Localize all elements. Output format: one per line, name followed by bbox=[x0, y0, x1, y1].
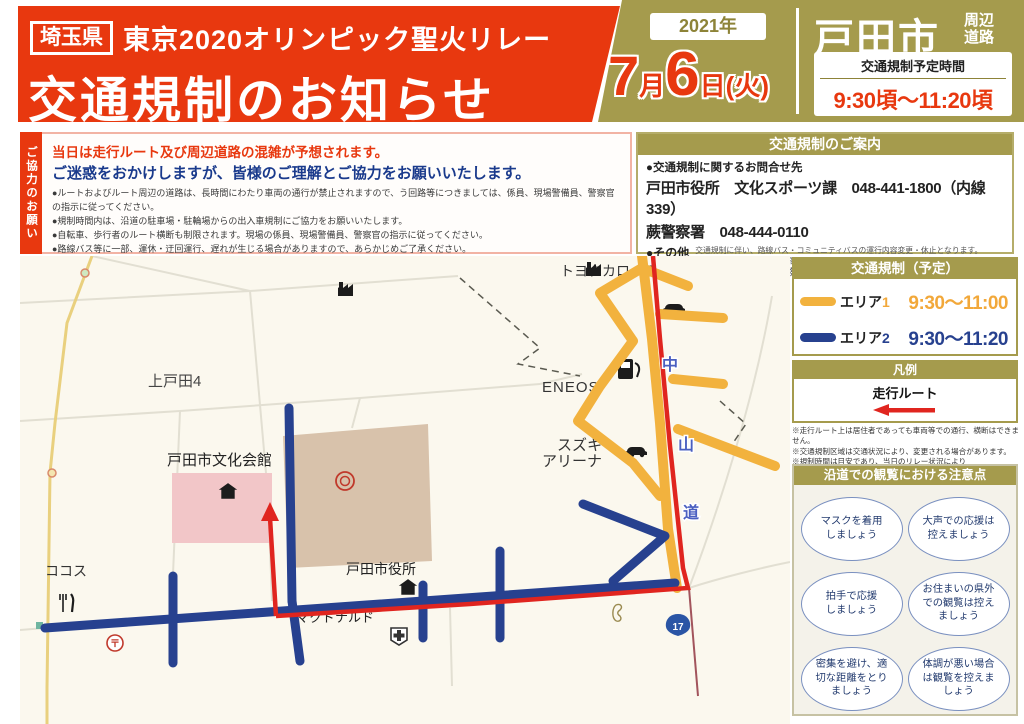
area2-label: エリア bbox=[840, 330, 882, 346]
tip-bubble: マスクを着用しましょう bbox=[801, 497, 903, 561]
guide-title: 交通規制のご案内 bbox=[638, 134, 1012, 155]
legend-title: 凡例 bbox=[794, 362, 1016, 379]
date-day-num: 6 bbox=[665, 40, 699, 109]
area2-time: 9:30～11:20 bbox=[908, 324, 1008, 351]
regulation-panel-title: 交通規制（予定） bbox=[794, 259, 1016, 279]
label-nakasendo-1: 中 bbox=[662, 355, 678, 374]
viewing-tips-panel: 沿道での観覧における注意点 マスクを着用しましょう 大声での応援は控えましょう … bbox=[792, 464, 1018, 716]
year-box: 2021年 bbox=[650, 13, 766, 40]
header-banner-gold: 2021年 7月6日(火) 戸田市 周辺 道路 交通規制予定時間 9:30頃～1… bbox=[592, 0, 1024, 122]
guide-contact-line: 戸田市役所 文化スポーツ課 048-441-1800（内線339） bbox=[646, 177, 1004, 219]
label-nakasendo-3: 道 bbox=[683, 503, 699, 522]
request-bullet: ●路線バス等に一部、運休・迂回運行、遅れが生じる場合がありますので、あらかじめご… bbox=[52, 243, 622, 257]
date-day-label: 日(火) bbox=[700, 71, 769, 101]
area1-color-bar bbox=[800, 297, 836, 306]
divider bbox=[796, 8, 799, 114]
tip-bubble: 体調が悪い場合は観覧を控えましょう bbox=[908, 647, 1010, 711]
regulation-time-value: 9:30頃～11:20頃 bbox=[820, 83, 1006, 115]
cooperation-request-box: ご協力のお願い 当日は走行ルート及び周辺道路の混雑が予想されます。 ご迷惑をおか… bbox=[20, 132, 632, 254]
area2-number: 2 bbox=[882, 330, 890, 346]
regulation-guide-box: 交通規制のご案内 ●交通規制に関するお問合せ先 戸田市役所 文化スポーツ課 04… bbox=[636, 132, 1014, 254]
label-kamitoda: 上戸田4 bbox=[148, 373, 201, 390]
running-route-label: 走行ルート bbox=[794, 383, 1016, 402]
label-suzuki-arena2: アリーナ bbox=[542, 453, 602, 470]
request-bullet: ●自転車、歩行者のルート横断も制限されます。現場の係員、現場警備員、警察官の指示… bbox=[52, 229, 622, 243]
area1-label: エリア bbox=[840, 294, 882, 310]
request-bullet: ●規制時間内は、沿道の駐車場・駐輪場からの出入車規制にご協力をお願いいたします。 bbox=[52, 215, 622, 229]
running-route-arrow bbox=[873, 403, 937, 417]
regulation-schedule-panel: 交通規制（予定） エリア1 9:30～11:00 エリア2 9:30～11:20 bbox=[792, 257, 1018, 356]
regulation-time-box: 交通規制予定時間 9:30頃～11:20頃 bbox=[814, 52, 1012, 116]
request-bullet: ●ルートおよびルート周辺の道路は、長時間にわたり車両の通行が禁止されますので、う… bbox=[52, 187, 622, 215]
event-date: 7月6日(火) bbox=[608, 40, 769, 111]
header-banner-red: 埼玉県 東京2020オリンピック聖火リレー 交通規制のお知らせ bbox=[18, 6, 620, 122]
label-bunka-kaikan: 戸田市文化会館 bbox=[167, 452, 272, 469]
route17-number: 17 bbox=[672, 622, 684, 633]
area1-row: エリア1 9:30～11:00 bbox=[794, 279, 1016, 315]
viewing-tips-title: 沿道での観覧における注意点 bbox=[794, 466, 1016, 485]
legend-panel: 凡例 走行ルート bbox=[792, 360, 1018, 423]
regulation-time-title: 交通規制予定時間 bbox=[820, 56, 1006, 79]
tip-bubble: 大声での応援は控えましょう bbox=[908, 497, 1010, 561]
area1-number: 1 bbox=[882, 294, 890, 310]
prefecture-badge: 埼玉県 bbox=[30, 21, 113, 55]
label-nakasendo-2: 山 bbox=[678, 436, 694, 454]
date-month-num: 7 bbox=[608, 44, 639, 107]
surrounding-roads-label: 周辺 道路 bbox=[964, 12, 994, 47]
guide-contact-heading: ●交通規制に関するお問合せ先 bbox=[646, 159, 1004, 175]
label-cocos: ココス bbox=[45, 563, 87, 579]
tip-bubble: お住まいの県外での観覧は控えましょう bbox=[908, 572, 1010, 636]
area2-color-bar bbox=[800, 333, 836, 342]
tip-bubble: 拍手で応援しましょう bbox=[801, 572, 903, 636]
cooperation-request-tab: ご協力のお願い bbox=[20, 132, 42, 254]
flyer-page: 埼玉県 東京2020オリンピック聖火リレー 交通規制のお知らせ 2021年 7月… bbox=[0, 0, 1024, 724]
route-map: 上戸田4 戸田市文化会館 ENEOS トヨタカローラ スズキ アリーナ ココス … bbox=[20, 256, 790, 724]
request-headline-blue: ご迷惑をおかけしますが、皆様のご理解とご協力をお願いいたします。 bbox=[52, 162, 622, 183]
date-month-label: 月 bbox=[639, 71, 665, 101]
page-title: 交通規制のお知らせ bbox=[18, 57, 620, 132]
tip-bubble: 密集を避け、適切な距離をとりましょう bbox=[801, 647, 903, 711]
area1-time: 9:30～11:00 bbox=[908, 288, 1008, 315]
route-map-svg: 上戸田4 戸田市文化会館 ENEOS トヨタカローラ スズキ アリーナ ココス … bbox=[20, 256, 790, 724]
relay-title: 東京2020オリンピック聖火リレー bbox=[123, 18, 551, 57]
request-headline-red: 当日は走行ルート及び周辺道路の混雑が予想されます。 bbox=[52, 141, 622, 161]
culture-hall-block bbox=[172, 473, 272, 543]
guide-contact-line: 蕨警察署 048-444-0110 bbox=[646, 221, 1004, 242]
post-office-icon: 〒 bbox=[107, 635, 123, 651]
signal-marker bbox=[48, 469, 56, 477]
label-city-hall: 戸田市役所 bbox=[346, 561, 416, 577]
area2-row: エリア2 9:30～11:20 bbox=[794, 315, 1016, 351]
shaded-block-tan bbox=[283, 424, 432, 568]
svg-text:〒: 〒 bbox=[110, 638, 120, 650]
signal-marker bbox=[81, 269, 89, 277]
